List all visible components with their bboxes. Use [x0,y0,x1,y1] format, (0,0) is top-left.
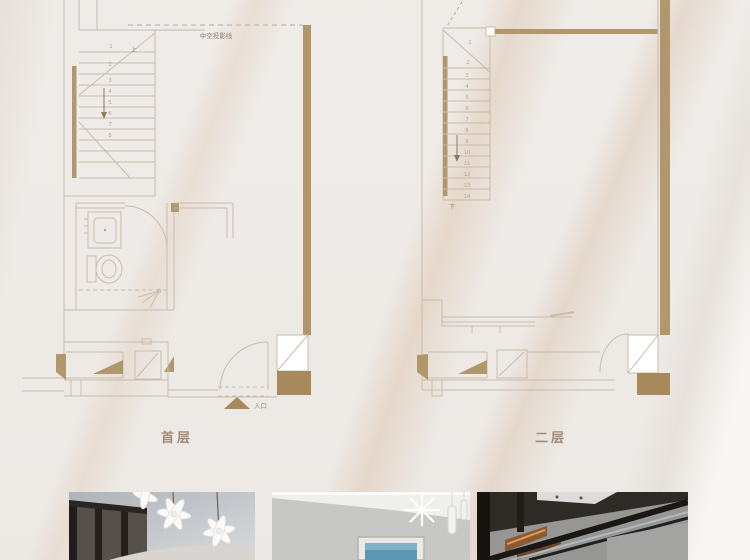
step-number: 6 [108,111,112,117]
stair-up-label: 上 [131,46,137,54]
step-number: 1 [109,44,113,50]
step-number: 14 [464,194,470,200]
step-number: 4 [465,84,468,90]
void-projection-line: 中空投影线 [128,25,303,40]
step-number: 11 [464,161,470,167]
void-projection-label: 中空投影线 [200,31,233,40]
first-floor-right-wall [277,25,311,395]
entrance-label: 入口 [254,402,267,410]
photo-thumbnail-chandelier[interactable] [69,492,255,560]
framed-artwork [358,537,424,560]
photo-hallway-scene [272,492,470,560]
step-number: 12 [464,172,470,178]
floor-plan-first-floor[interactable]: 1 2 3 4 5 6 7 8 上 中空投影线 [22,0,311,410]
floor-plan-second-floor[interactable]: 1 2 3 4 5 6 7 8 9 10 11 12 13 14 下 [417,0,670,396]
step-number: 7 [108,122,112,128]
second-floor-step-numbers: 1 2 3 4 5 6 7 8 9 10 11 12 13 14 下 [449,40,472,211]
step-number: 9 [465,139,468,145]
step-number: 1 [468,40,471,46]
step-number: 2 [466,60,469,66]
step-number: 3 [108,78,112,84]
photo-thumbnail-staircase[interactable] [477,492,688,560]
photo-staircase-scene [477,492,688,560]
second-floor-windows [417,334,628,396]
step-number: 10 [464,150,470,156]
first-floor-entrance: 入口 [168,342,277,410]
first-floor-label: 首层 [142,427,212,446]
step-number: 3 [465,73,468,79]
step-number: 7 [465,117,468,123]
step-number: 4 [108,89,112,95]
first-floor-step-numbers: 1 2 3 4 5 6 7 8 上 [108,44,137,139]
first-floor-bathroom [64,203,233,310]
second-floor-walls [486,0,670,395]
listing-page: 1 2 3 4 5 6 7 8 上 中空投影线 [0,0,750,560]
step-number: 5 [108,100,112,106]
step-number: 6 [465,106,468,112]
entrance-arrow-icon [224,397,250,409]
step-number: 2 [108,62,112,68]
photo-thumbnail-hallway-art[interactable] [272,492,470,560]
first-floor-windows [22,339,174,397]
first-floor-staircase [64,30,205,196]
stair-down-label: 下 [449,204,455,211]
step-number: 8 [108,133,112,139]
step-number: 5 [465,95,468,101]
step-number: 8 [465,128,468,134]
second-floor-label: 二层 [516,427,586,446]
step-number: 13 [464,183,470,189]
floor-plans-image[interactable]: 1 2 3 4 5 6 7 8 上 中空投影线 [0,0,750,470]
photo-chandelier-scene [69,492,255,560]
second-floor-desk [422,300,574,333]
